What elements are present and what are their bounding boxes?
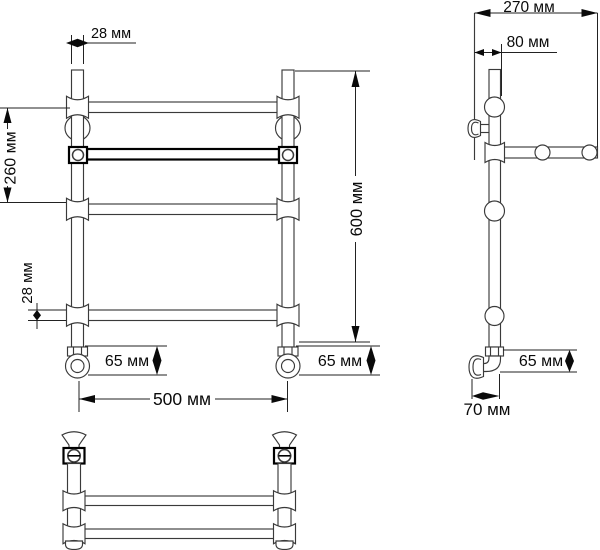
dim-wall-offset: 80 мм xyxy=(475,34,558,96)
pipe-fitting xyxy=(67,304,89,326)
dim-label-post-width: 28 мм xyxy=(91,26,131,42)
pipe-fitting xyxy=(277,304,299,326)
dim-overall-width: 500 мм xyxy=(79,381,288,412)
dim-valve-height-left: 65 мм xyxy=(85,346,167,375)
crossbar-top-view xyxy=(84,496,275,506)
dim-label-depth: 270 мм xyxy=(503,0,554,16)
dim-rail-spacing: 260 мм xyxy=(0,108,70,203)
rail-top xyxy=(84,102,283,113)
ball-ornament xyxy=(485,97,505,117)
dim-label-wall-offset: 80 мм xyxy=(507,34,550,51)
side-view xyxy=(468,13,598,378)
wall-bracket xyxy=(468,120,489,138)
front-towel-bar xyxy=(87,149,279,160)
valve-right xyxy=(276,347,300,378)
dim-post-width-top: 28 мм xyxy=(66,26,136,64)
dim-label-valve-left: 65 мм xyxy=(105,353,149,370)
towel-rail-drawing: 28 мм 260 мм 28 мм 65 мм 65 мм xyxy=(0,0,600,550)
dim-tube-diameter: 28 мм xyxy=(19,262,66,329)
wall-elbow-valve xyxy=(469,347,504,378)
rail-middle xyxy=(84,204,283,215)
dim-bottom-offset: 70 мм xyxy=(463,374,510,419)
pipe-fitting xyxy=(274,491,296,511)
front-view xyxy=(65,70,301,378)
ball-ornament xyxy=(485,307,504,326)
ball-ornament xyxy=(535,145,550,160)
union-nut xyxy=(486,347,504,356)
pipe-fitting xyxy=(67,96,89,118)
valve-wheel xyxy=(276,354,300,378)
dim-label-valve-side: 65 мм xyxy=(519,353,563,370)
dim-label-tube-diameter: 28 мм xyxy=(19,262,36,303)
crossbar-top-view xyxy=(84,529,275,539)
pipe-fitting xyxy=(277,96,299,118)
ball-ornament xyxy=(485,201,505,221)
wall-bracket-top xyxy=(62,432,86,448)
dim-label-overall-width: 500 мм xyxy=(153,389,211,409)
dim-valve-height-right: 65 мм xyxy=(296,346,380,375)
dim-label-bottom-offset: 70 мм xyxy=(463,400,510,419)
rail-bottom xyxy=(84,310,283,321)
wall-bracket-top xyxy=(273,432,297,448)
pipe-fitting xyxy=(63,491,85,511)
technical-drawing-canvas: 28 мм 260 мм 28 мм 65 мм 65 мм xyxy=(0,0,600,550)
dim-label-overall-height: 600 мм xyxy=(348,182,366,237)
pipe-fitting xyxy=(277,198,299,220)
valve-wheel xyxy=(66,354,90,378)
post-end-cap xyxy=(66,541,83,550)
dim-label-valve-right: 65 мм xyxy=(318,353,362,370)
pipe-fitting xyxy=(485,143,505,163)
valve-left xyxy=(66,347,90,378)
dim-overall-height: 600 мм xyxy=(295,71,370,342)
bottom-view xyxy=(62,432,297,550)
ball-ornament xyxy=(582,145,597,160)
post-end-cap xyxy=(276,541,293,550)
dim-valve-height-side: 65 мм xyxy=(500,350,577,372)
pipe-fitting xyxy=(67,198,89,220)
dim-label-rail-spacing: 260 мм xyxy=(3,131,20,184)
